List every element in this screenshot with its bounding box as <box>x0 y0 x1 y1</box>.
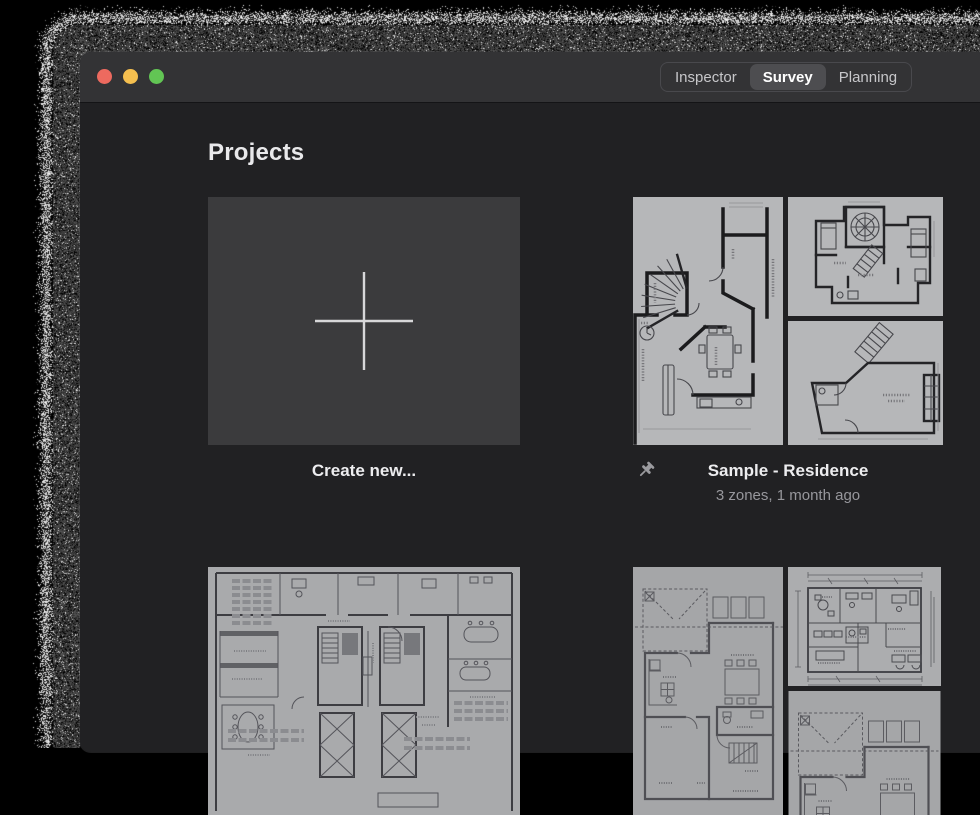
floorplan-thumbnail-sketch <box>788 567 943 686</box>
app-window: Inspector Survey Planning Projects Creat… <box>80 52 980 752</box>
project-card-office[interactable] <box>208 567 520 815</box>
floorplan-thumbnail-basement <box>788 321 943 445</box>
create-project-card[interactable]: Create new... <box>208 197 520 506</box>
projects-grid: Create new... <box>208 197 980 815</box>
tab-survey[interactable]: Survey <box>750 64 826 90</box>
floorplan-thumbnail-office[interactable] <box>208 567 520 815</box>
floorplan-thumbnail-ground <box>633 197 783 445</box>
close-button-icon[interactable] <box>97 69 112 84</box>
project-label-row: Sample - Residence 3 zones, 1 month ago <box>633 460 943 506</box>
projects-content: Projects Create new... <box>80 139 980 815</box>
floorplan-thumbnail-house-crop <box>788 691 943 815</box>
project-title: Sample - Residence <box>633 460 943 482</box>
project-card-house[interactable] <box>633 567 943 815</box>
window-titlebar: Inspector Survey Planning <box>80 52 980 103</box>
project-thumbnails[interactable] <box>633 197 943 445</box>
floorplan-thumbnail-upper <box>788 197 943 316</box>
zoom-button-icon[interactable] <box>149 69 164 84</box>
plus-icon <box>208 197 520 445</box>
pin-icon <box>635 460 657 482</box>
project-subtitle: 3 zones, 1 month ago <box>633 486 943 506</box>
create-card-label-row: Create new... <box>208 460 520 482</box>
create-project-tile[interactable] <box>208 197 520 445</box>
mode-segmented-control: Inspector Survey Planning <box>660 62 912 92</box>
minimize-button-icon[interactable] <box>123 69 138 84</box>
page-title: Projects <box>208 139 980 167</box>
project-thumbnails[interactable] <box>633 567 943 815</box>
tab-planning[interactable]: Planning <box>826 64 910 90</box>
project-card-sample-residence[interactable]: Sample - Residence 3 zones, 1 month ago <box>633 197 943 506</box>
tab-inspector[interactable]: Inspector <box>662 64 750 90</box>
traffic-lights <box>97 69 164 84</box>
floorplan-thumbnail-house-ground <box>633 567 783 815</box>
create-card-label: Create new... <box>208 460 520 482</box>
